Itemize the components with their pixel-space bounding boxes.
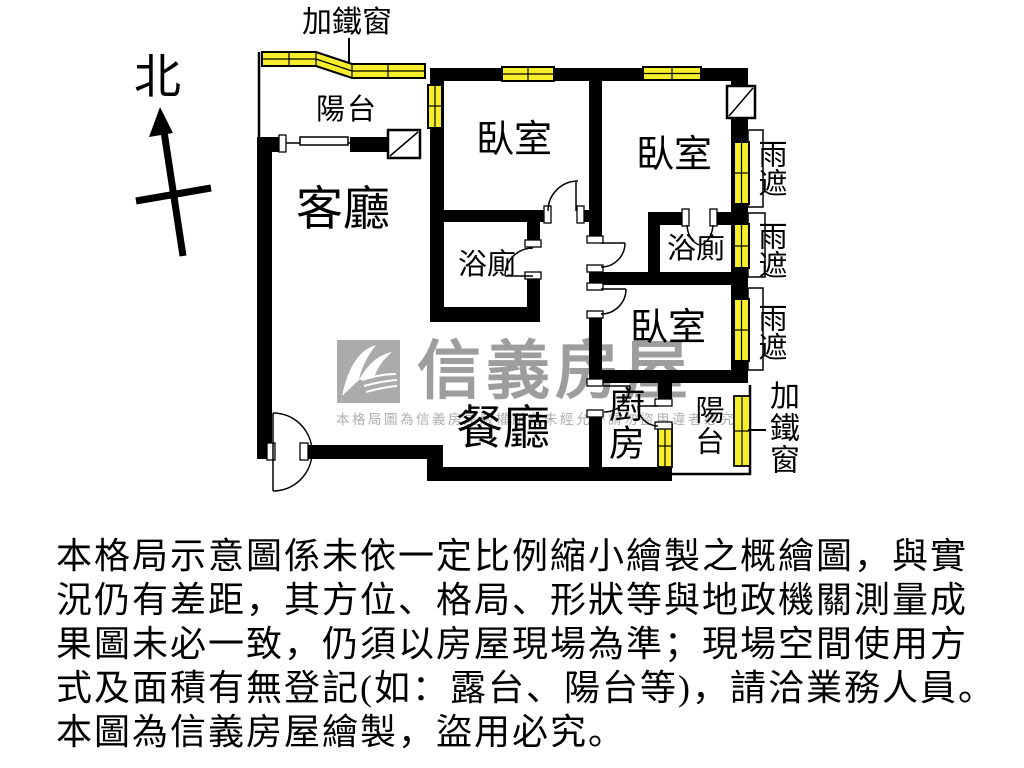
living-room-label: 客廳	[296, 187, 390, 234]
balcony-front-label: 陽台	[316, 96, 378, 125]
wall-v2-upper	[589, 68, 602, 242]
disclaimer-line: 本圖為信義房屋繪製，盜用必究。	[56, 710, 996, 754]
rain-cover-3-label: 雨遮	[755, 303, 784, 361]
wall-bottom-left	[303, 445, 435, 459]
iron-window-right-label: 加鐵窗	[766, 380, 796, 476]
disclaimer-line: 果圖未必一致，仍須以房屋現場為準；現場空間使用方	[56, 622, 996, 666]
bedroom1-label: 臥室	[476, 121, 552, 159]
floorplan-page: 信義房屋 本格局圖為信義房屋版權所有未經允許請勿盜用違者必究	[0, 0, 1024, 768]
wall-bedroom3-bottom	[589, 370, 748, 383]
disclaimer-line: 本格局示意圖係未依一定比例縮小繪製之概繪圖，與實	[56, 534, 996, 578]
bathroom1-label: 浴廁	[458, 251, 516, 280]
north-label: 北	[134, 55, 181, 102]
bedroom1-door-arc	[548, 181, 578, 211]
disclaimer-line: 況仍有差距，其方位、格局、形狀等與地政機關測量成	[56, 578, 996, 622]
bathroom2-label: 浴廁	[667, 235, 725, 264]
bedroom2-door-arc	[601, 243, 625, 267]
north-compass	[136, 107, 211, 256]
iron-window-top-label: 加鐵窗	[302, 8, 392, 38]
disclaimer-line: 式及面積有無登記(如：露台、陽台等)，請洽業務人員。	[56, 666, 996, 710]
wall-balcony-divider-right	[350, 137, 390, 152]
dining-room-label: 餐廳	[456, 406, 550, 453]
window-front-balcony-band	[262, 52, 425, 78]
wall-bath2-bottom	[601, 272, 731, 285]
wall-bottom-right	[435, 467, 672, 481]
bedroom2-label: 臥室	[636, 136, 712, 174]
disclaimer-block: 本格局示意圖係未依一定比例縮小繪製之概繪圖，與實 況仍有差距，其方位、格局、形狀…	[56, 534, 996, 754]
wall-kitchen-left	[589, 413, 602, 470]
wall-left	[257, 137, 272, 459]
sliding-door-panel	[300, 137, 348, 145]
rain-cover-2-label: 雨遮	[755, 221, 784, 279]
north-arrowhead-icon	[149, 107, 173, 137]
wall-bath1-bottom	[430, 307, 540, 322]
balcony-rear-label: 陽台	[692, 395, 721, 457]
bedroom3-label: 臥室	[630, 309, 706, 347]
kitchen-label: 廚房	[606, 386, 642, 462]
rain-cover-1-label: 雨遮	[755, 139, 784, 197]
bedroom3-door-arc	[601, 289, 626, 314]
